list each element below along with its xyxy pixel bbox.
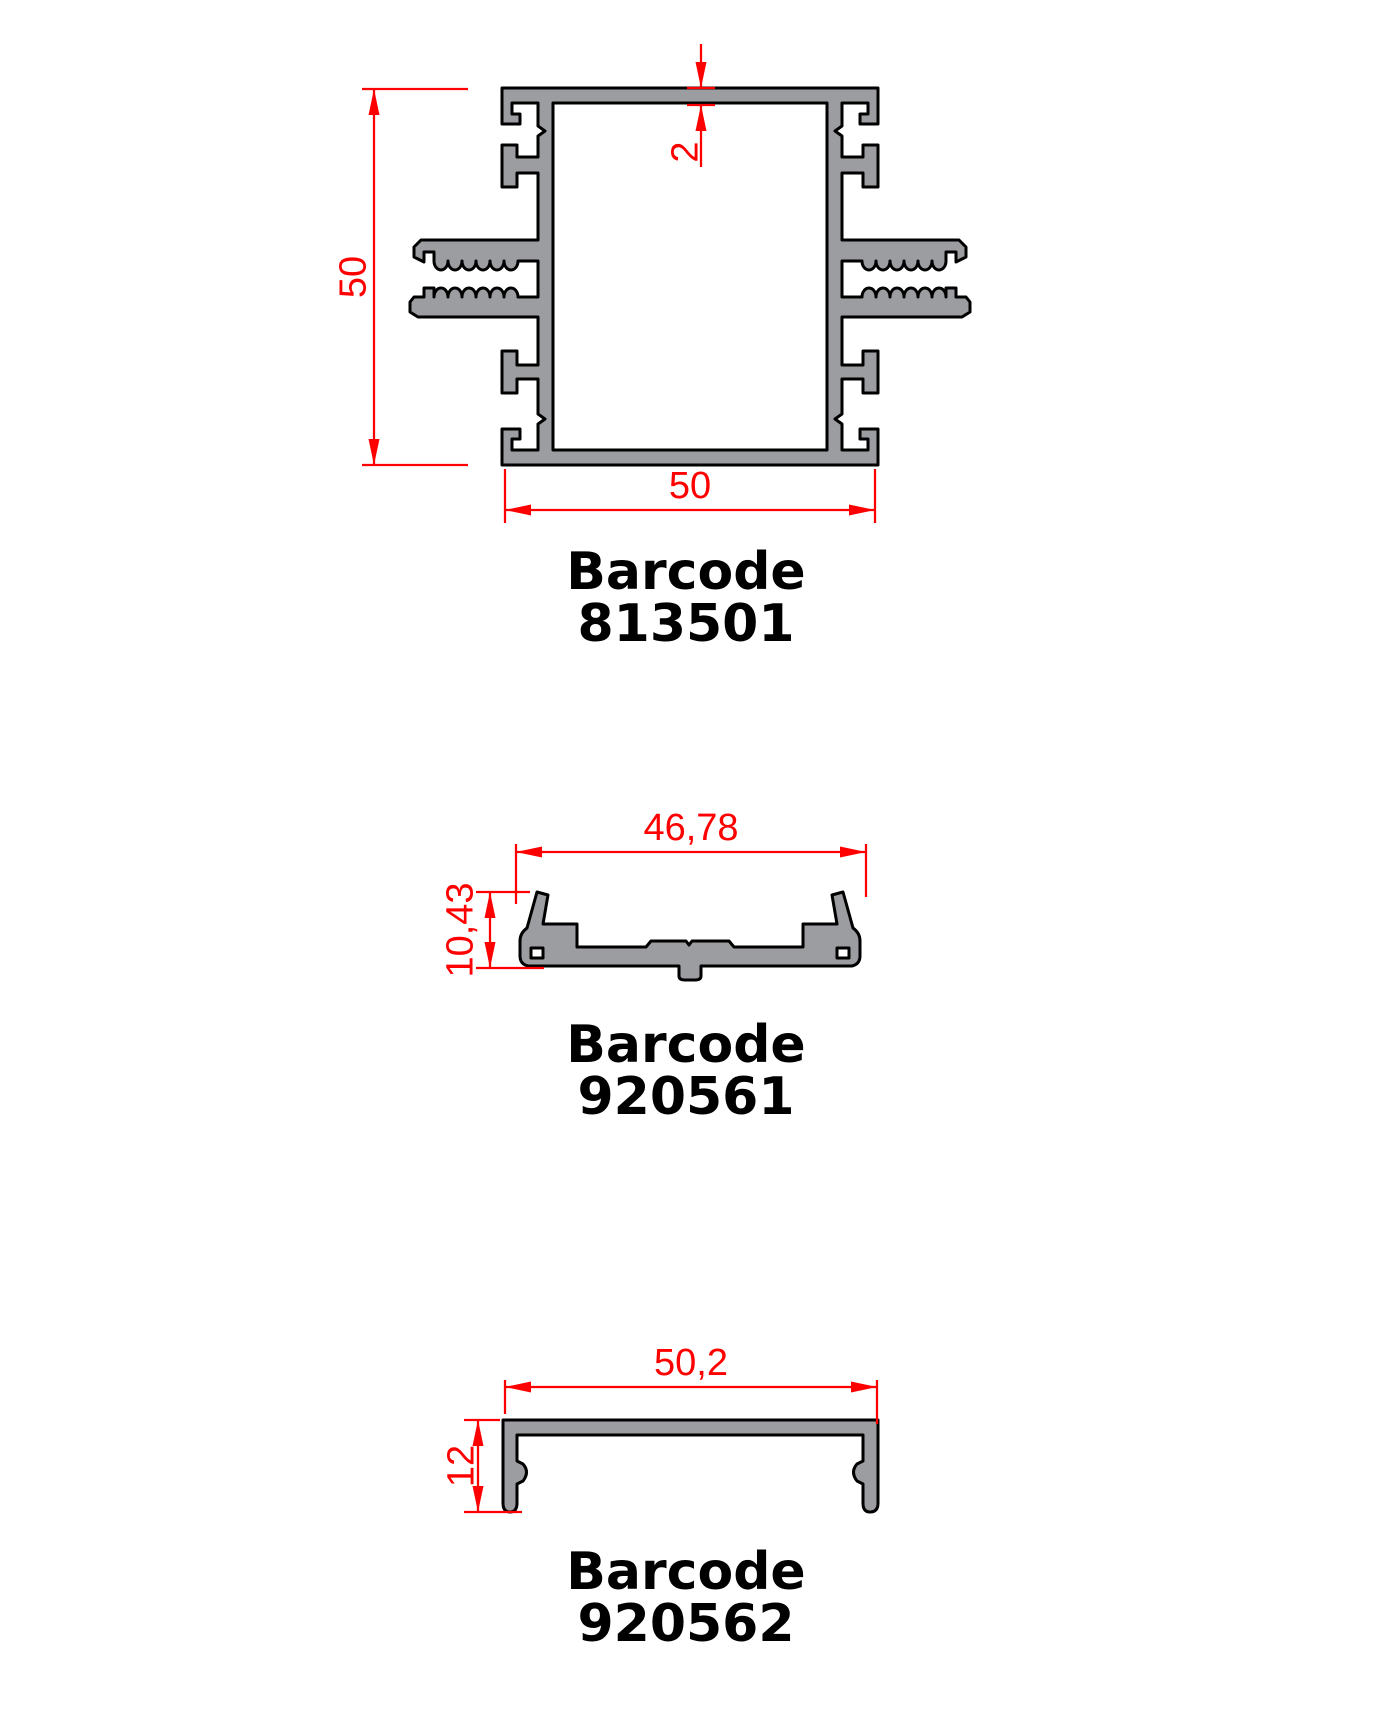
- arrowhead-left: [505, 505, 531, 516]
- arrowhead-down: [696, 62, 707, 88]
- dim-value-width: 50,2: [654, 1342, 728, 1384]
- dimension-profile1-width: 50: [505, 465, 875, 523]
- drawing-sheet: 50 2 50 Barcode 813501: [0, 0, 1380, 1732]
- arrowhead-up: [369, 89, 380, 115]
- dim-value-height: 10,43: [439, 882, 481, 977]
- profile-section-1: 50 2 50 Barcode 813501: [332, 44, 970, 654]
- dimension-profile1-wall: 2: [664, 44, 715, 167]
- dimension-profile3-width: 50,2: [505, 1342, 877, 1424]
- arrowhead-up: [473, 1420, 484, 1446]
- barcode-block-3: Barcode 920562: [566, 1542, 805, 1654]
- profile-section-3: 50,2 12 Barcode 920562: [440, 1342, 878, 1654]
- dim-value-height: 12: [440, 1445, 482, 1487]
- arrowhead-right: [851, 1382, 877, 1393]
- dim-value-width: 50: [669, 465, 711, 507]
- barcode-caption: Barcode: [566, 1542, 805, 1602]
- arrowhead-down: [485, 942, 496, 968]
- profile-3-cross-section: [503, 1420, 878, 1512]
- arrowhead-up: [696, 105, 707, 131]
- barcode-number: 813501: [577, 594, 794, 654]
- dimension-profile2-width: 46,78: [516, 807, 866, 904]
- arrowhead-left: [516, 847, 542, 858]
- barcode-block-1: Barcode 813501: [566, 542, 805, 654]
- barcode-caption: Barcode: [566, 1015, 805, 1075]
- dim-value-width: 46,78: [643, 807, 738, 849]
- profile-2-cross-section: [520, 892, 860, 980]
- barcode-number: 920561: [577, 1067, 794, 1127]
- barcode-block-2: Barcode 920561: [566, 1015, 805, 1127]
- arrowhead-up: [485, 892, 496, 918]
- technical-drawing-canvas: 50 2 50 Barcode 813501: [0, 0, 1380, 1732]
- profile-section-2: 46,78 10,43 Barcode 920561: [439, 807, 866, 1127]
- arrowhead-down: [369, 439, 380, 465]
- arrowhead-down: [473, 1486, 484, 1512]
- dim-value-wall: 2: [664, 141, 706, 162]
- arrowhead-left: [505, 1382, 531, 1393]
- barcode-caption: Barcode: [566, 542, 805, 602]
- arrowhead-right: [840, 847, 866, 858]
- arrowhead-right: [849, 505, 875, 516]
- barcode-number: 920562: [577, 1594, 794, 1654]
- dim-value-height: 50: [332, 256, 374, 298]
- dimension-profile1-height: 50: [332, 89, 468, 465]
